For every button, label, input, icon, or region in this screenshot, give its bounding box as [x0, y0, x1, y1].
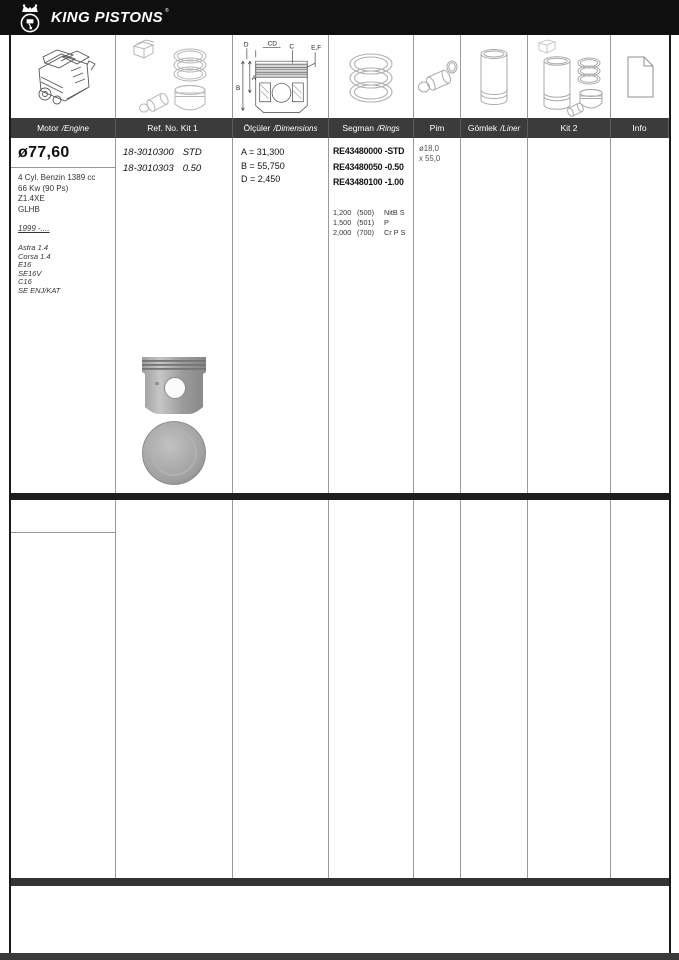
ref-size: 0.50 [183, 163, 202, 174]
ring-height: 1,200 [333, 208, 357, 218]
cell-kit2-empty [528, 500, 611, 878]
pin-icon [415, 42, 459, 112]
header-motor-engine: Motor /Engine [11, 118, 116, 138]
ring-type: NitB S [384, 208, 405, 218]
cell-kit2 [528, 138, 611, 493]
cell-motor-engine: ø77,60 4 Cyl. Benzin 1389 cc 66 Kw (90 P… [11, 138, 116, 493]
header-label: Pim [430, 123, 445, 133]
ring-type: Cr P S [384, 228, 405, 238]
ref-number: 18-3010300 [123, 147, 174, 158]
ring-type: P [384, 218, 389, 228]
header-dimensions: Ölçüler /Dimensions [233, 118, 329, 138]
header-label-italic: /Engine [62, 124, 89, 133]
cell-ref-no-kit1-empty [116, 500, 233, 878]
cell-liner-empty [461, 500, 528, 878]
model-item: SE ENJ/KAT [18, 287, 108, 296]
king-pistons-logo-icon [16, 3, 44, 34]
cell-pin: ø18,0 x 55,0 [414, 138, 461, 493]
header-label: Gömlek [468, 123, 497, 133]
header-pin: Pim [414, 118, 461, 138]
cell-dimensions: A = 31,300 B = 55,750 D = 2,450 [233, 138, 329, 493]
cell-dimensions-empty [233, 500, 329, 878]
kit2-icon [529, 37, 609, 117]
ring-spec: 2,000 (700) Cr P S [333, 228, 413, 238]
engine-description: 4 Cyl. Benzin 1389 cc 66 Kw (90 Ps) Z1.4… [11, 168, 115, 215]
engine-icon [17, 39, 109, 115]
cell-rings: RE43480000 -STD RE43480050 -0.50 RE43480… [329, 138, 414, 493]
dim-label-b: B [236, 84, 240, 91]
bore-subcell-empty [11, 500, 115, 533]
cell-piston-kit-icon [116, 35, 233, 118]
dimension-line: D = 2,450 [241, 173, 328, 187]
kit1-ref: 18-3010300STD [123, 145, 232, 161]
ring-ref: RE43480050 -0.50 [333, 160, 413, 176]
header-label: Info [632, 123, 646, 133]
pin-diameter: ø18,0 [419, 144, 460, 154]
dim-label-c: C [289, 43, 294, 50]
page-footer-bar [0, 953, 679, 960]
ring-height: 1,500 [333, 218, 357, 228]
ring-spec-list: 1,200 (500) NitB S 1,500 (501) P 2,000 (… [329, 208, 413, 238]
ring-code: (700) [357, 228, 384, 238]
cell-pin-icon [414, 35, 461, 118]
cell-rings-empty [329, 500, 414, 878]
table-bottom-bar [11, 878, 669, 886]
dim-label-a: A [252, 74, 257, 81]
piston-dimensions-icon: D CD C E,F A B [233, 37, 328, 117]
dimension-list: A = 31,300 B = 55,750 D = 2,450 [233, 138, 328, 187]
header-rings: Segman /Rings [329, 118, 414, 138]
header-label: Motor [37, 123, 59, 133]
brand-bar: KING PISTONS ® [0, 0, 679, 35]
kit1-ref-list: 18-3010300STD 18-30103030.50 [116, 138, 232, 177]
ring-height: 2,000 [333, 228, 357, 238]
page-margin-bottom [11, 886, 669, 953]
ring-ref: RE43480000 -STD [333, 144, 413, 160]
engine-line: Z1.4XE [18, 194, 108, 205]
brand-reg-mark: ® [165, 8, 169, 14]
pin-length: x 55,0 [419, 154, 460, 164]
cell-motor-engine-empty [11, 500, 116, 878]
bore-diameter: ø77,60 [11, 138, 115, 168]
kit1-ref: 18-30103030.50 [123, 161, 232, 177]
piston-top-photo [141, 420, 207, 486]
cell-liner [461, 138, 528, 493]
engine-line: 66 Kw (90 Ps) [18, 184, 108, 195]
header-label-italic: /Liner [500, 124, 520, 133]
piston-kit-icon [120, 38, 228, 116]
model-list: Astra 1.4 Corsa 1.4 E16 SE16V C16 SE ENJ… [18, 244, 108, 295]
cell-info [611, 138, 669, 493]
header-ref-no-kit1: Ref. No. Kit 1 [116, 118, 233, 138]
table-header-row: Motor /Engine Ref. No. Kit 1 Ölçüler /Di… [11, 118, 669, 138]
ring-code: (501) [357, 218, 384, 228]
cell-rings-icon [329, 35, 414, 118]
production-years: 1999 -.... [18, 224, 108, 233]
cell-piston-dimensions: D CD C E,F A B [233, 35, 329, 118]
model-item: Corsa 1.4 [18, 253, 108, 262]
cell-engine-icon [11, 35, 116, 118]
header-info: Info [611, 118, 669, 138]
ring-ref-list: RE43480000 -STD RE43480050 -0.50 RE43480… [329, 138, 413, 191]
header-label-italic: /Dimensions [273, 124, 317, 133]
pin-spec: ø18,0 x 55,0 [414, 138, 460, 164]
empty-row-section [11, 500, 669, 878]
cell-ref-no-kit1: 18-3010300STD 18-30103030.50 [116, 138, 233, 493]
liner-icon [468, 42, 520, 112]
piston-side-photo [137, 355, 211, 417]
brand-name: KING PISTONS [51, 9, 163, 26]
engine-line: 4 Cyl. Benzin 1389 cc [18, 173, 108, 184]
icon-row: D CD C E,F A B [11, 35, 669, 118]
cell-info-empty [611, 500, 669, 878]
header-kit2: Kit 2 [528, 118, 611, 138]
data-row-section: ø77,60 4 Cyl. Benzin 1389 cc 66 Kw (90 P… [11, 138, 669, 493]
dim-label-d: D [244, 41, 249, 48]
dimension-line: B = 55,750 [241, 160, 328, 174]
header-liner: Gömlek /Liner [461, 118, 528, 138]
cell-kit2-icon [528, 35, 611, 118]
catalog-table: D CD C E,F A B [9, 35, 671, 953]
section-divider [11, 493, 669, 500]
header-label: Ref. No. Kit 1 [147, 123, 198, 133]
dim-label-cd: CD [268, 40, 278, 47]
cell-pin-empty [414, 500, 461, 878]
ring-spec: 1,200 (500) NitB S [333, 208, 413, 218]
ring-code: (500) [357, 208, 384, 218]
engine-line: GLHB [18, 205, 108, 216]
info-icon [618, 49, 662, 105]
header-label-italic: /Rings [377, 124, 400, 133]
ref-number: 18-3010303 [123, 163, 174, 174]
ring-ref: RE43480100 -1.00 [333, 175, 413, 191]
dim-label-ef: E,F [311, 44, 321, 51]
catalog-page: KING PISTONS ® [0, 0, 679, 960]
ref-size: STD [183, 147, 202, 158]
header-label: Kit 2 [560, 123, 577, 133]
cell-info-icon [611, 35, 669, 118]
dimension-line: A = 31,300 [241, 146, 328, 160]
header-label: Segman [342, 123, 374, 133]
rings-icon [331, 39, 411, 115]
header-label: Ölçüler [244, 123, 271, 133]
cell-liner-icon [461, 35, 528, 118]
ring-spec: 1,500 (501) P [333, 218, 413, 228]
